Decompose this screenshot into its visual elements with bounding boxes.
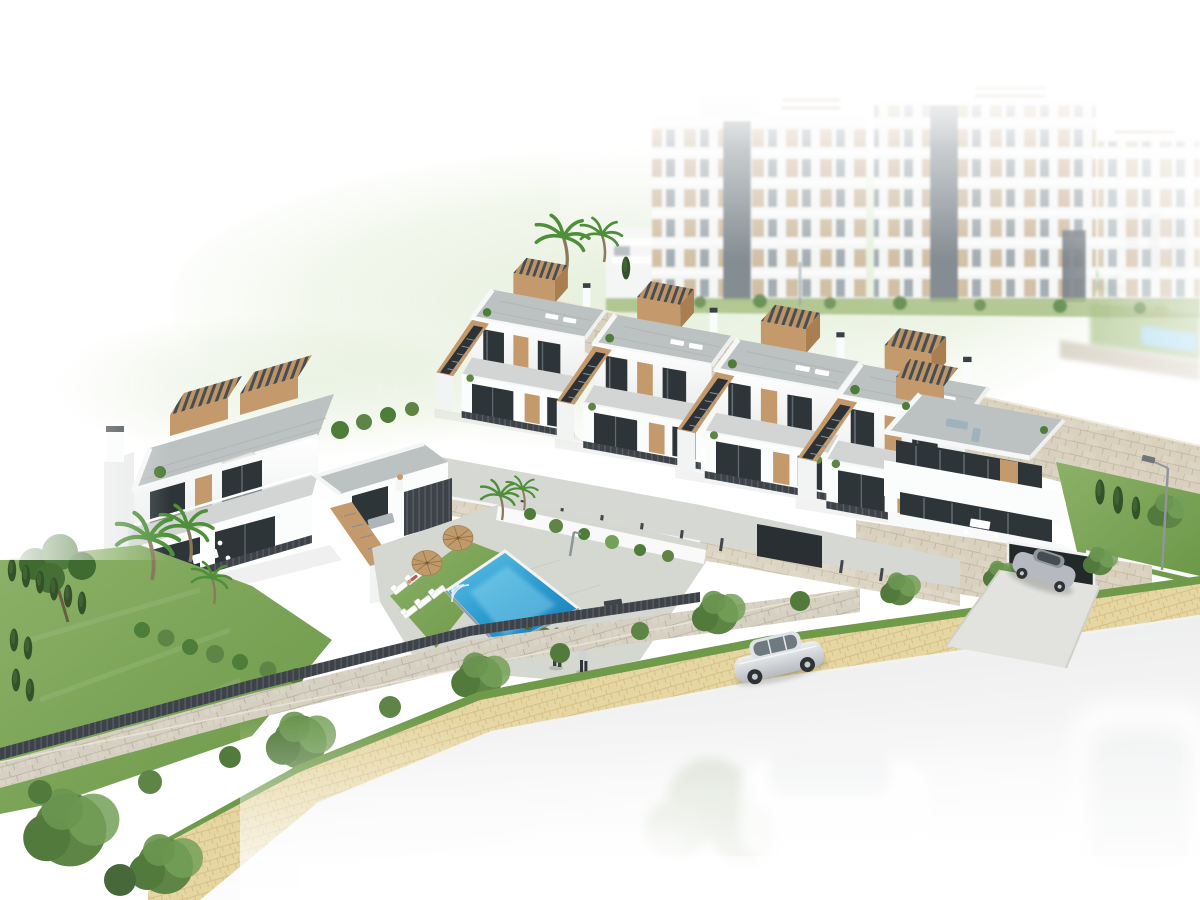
person-on-balcony xyxy=(397,474,403,480)
render-canvas xyxy=(0,0,1200,900)
